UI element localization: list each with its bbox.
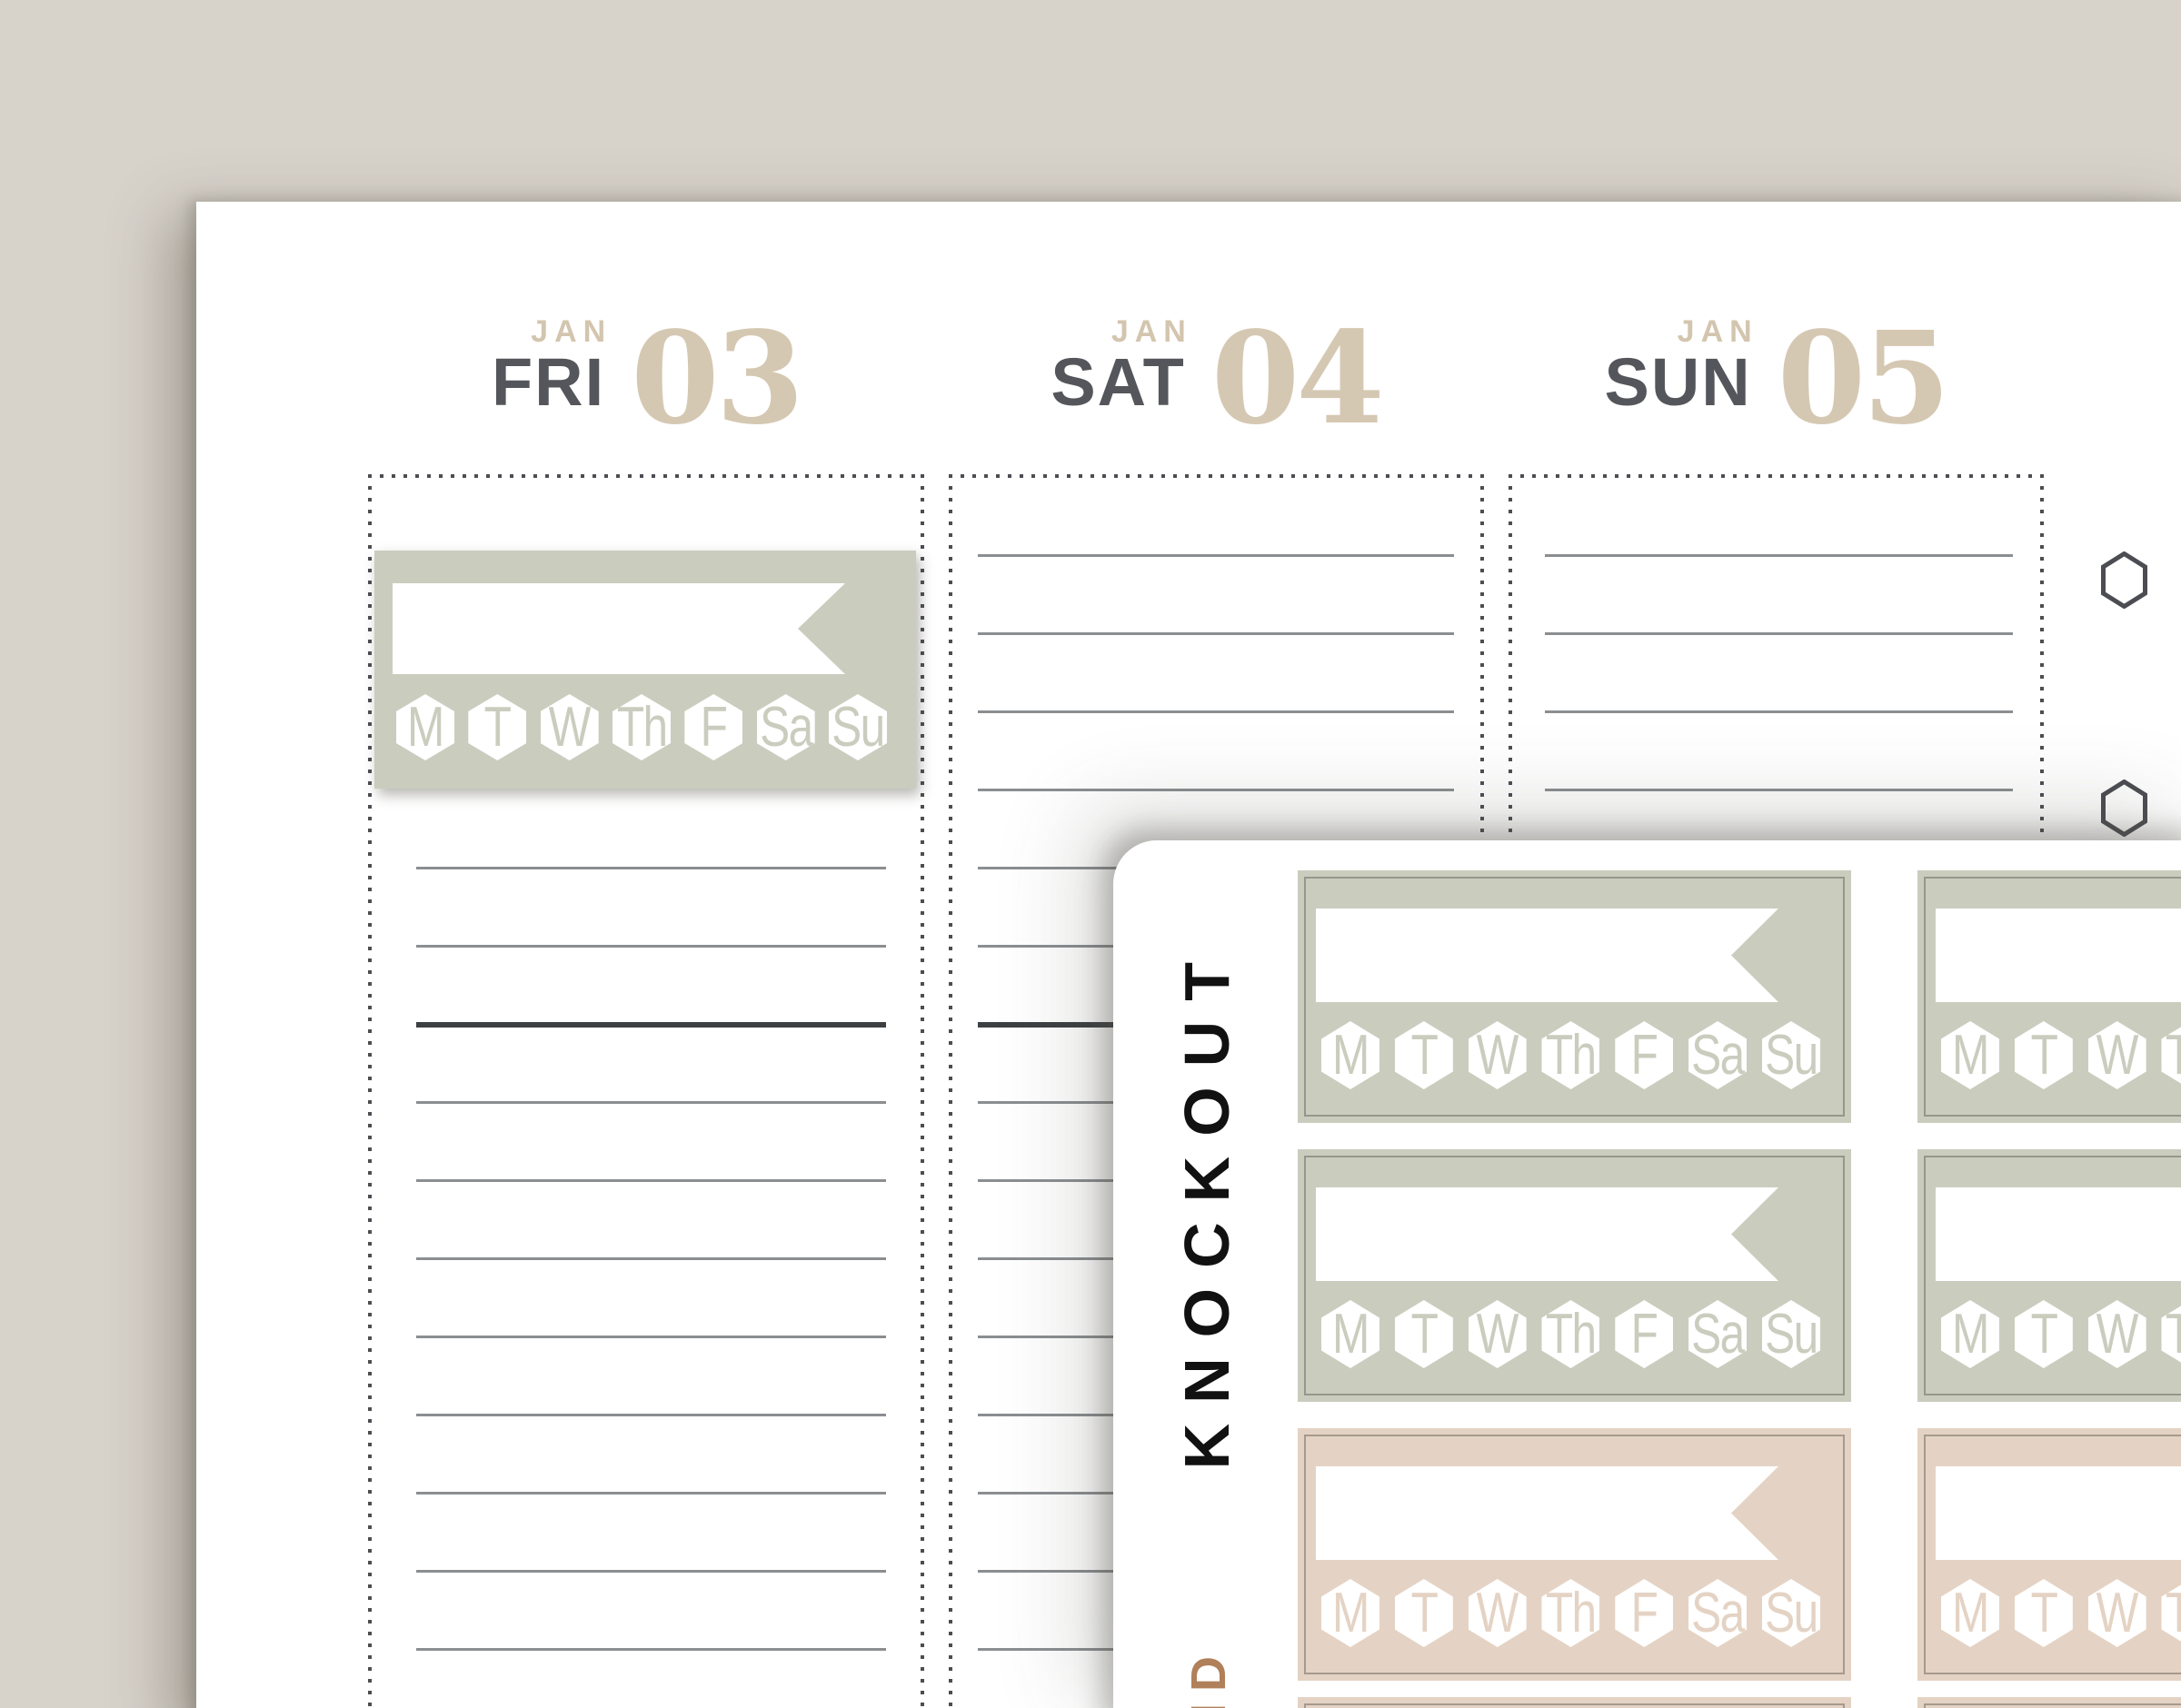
weekday-letter: W — [1477, 1585, 1518, 1642]
weekday-letter: Sa — [1691, 1028, 1743, 1084]
ribbon-banner — [1316, 1187, 1778, 1281]
weekday-hexagon: F — [684, 694, 742, 760]
weekday-hexagon: Th — [2161, 1579, 2181, 1647]
weekday-letter: T — [1410, 1306, 1437, 1363]
sheet-title: KNOCKOUT — [1175, 942, 1239, 1469]
habit-tracker-sticker: MTWThFSaSu — [1298, 1149, 1851, 1402]
weekday-hexagon: F — [1615, 1579, 1673, 1647]
weekday-hexagon-row: MTWThFSaSu — [1321, 1579, 1820, 1647]
weekday-letter: M — [1332, 1028, 1369, 1084]
weekday-hexagon: M — [1941, 1300, 1999, 1368]
habit-tracker-sticker-on-page: MTWThFSaSu — [374, 551, 916, 789]
ruled-line — [416, 867, 886, 869]
weekday-hexagon: T — [2015, 1579, 2073, 1647]
ribbon-banner — [393, 583, 845, 674]
weekday-hexagon: W — [1469, 1579, 1527, 1647]
weekday-letter: Sa — [760, 700, 812, 756]
weekday-hexagon: Su — [1762, 1021, 1820, 1089]
ribbon-banner — [1936, 1466, 2181, 1560]
weekday-letter: Th — [2166, 1306, 2181, 1363]
sticker-sheet: KNOCKOUT SOLID MTWThFSaSuMTWThFSaSuMTWTh… — [1113, 840, 2181, 1708]
weekday-hexagon: M — [1321, 1579, 1379, 1647]
weekday-letter: M — [1332, 1306, 1369, 1363]
weekday-letter: Su — [1765, 1585, 1817, 1642]
ruled-line — [1545, 554, 2013, 557]
date-number: 04 — [1211, 331, 1381, 427]
ruled-line — [416, 1648, 886, 1651]
weekday-letter: Sa — [1691, 1585, 1743, 1642]
day-name-block: JANSUN — [1604, 316, 1751, 411]
ruled-line — [1545, 789, 2013, 791]
ribbon-banner — [1316, 909, 1778, 1002]
habit-tracker-sticker: MTWThFSaSu — [1298, 870, 1851, 1123]
weekday-hexagon: T — [1395, 1021, 1453, 1089]
habit-tracker-sticker: MTWThFSaSu — [1298, 1697, 1851, 1708]
weekday-letter: F — [701, 700, 727, 756]
weekday-hexagon: Sa — [757, 694, 815, 760]
weekday-hexagon: T — [1395, 1579, 1453, 1647]
weekday-hexagon: Su — [829, 694, 887, 760]
month-label: JAN — [492, 316, 612, 347]
weekday-hexagon-row: MTWThFSaSu — [396, 694, 887, 760]
weekday-hexagon-row: MTWThFSaSu — [1941, 1300, 2181, 1368]
weekday-hexagon: W — [541, 694, 599, 760]
weekday-hexagon-row: MTWThFSaSu — [1941, 1579, 2181, 1647]
day-name-block: JANFRI — [492, 316, 605, 411]
weekday-hexagon-row: MTWThFSaSu — [1321, 1021, 1820, 1089]
weekday-letter: M — [1952, 1306, 1988, 1363]
weekday-letter: W — [2096, 1585, 2137, 1642]
weekday-letter: M — [1952, 1585, 1988, 1642]
weekday-hexagon: Su — [1762, 1579, 1820, 1647]
weekday-letter: T — [2030, 1585, 2057, 1642]
hexagon-checkbox-icon — [2101, 551, 2147, 609]
kiss-cut-line — [1924, 1703, 2181, 1708]
weekday-letter: Su — [832, 700, 883, 756]
weekday-letter: W — [1477, 1028, 1518, 1084]
ruled-line — [978, 710, 1454, 713]
ruled-line — [416, 1414, 886, 1416]
weekday-hexagon-row: MTWThFSaSu — [1321, 1300, 1820, 1368]
weekday-hexagon: M — [396, 694, 454, 760]
habit-tracker-sticker: MTWThFSaSu — [1298, 1428, 1851, 1681]
day-header: JANFRI03 — [492, 309, 801, 411]
date-number: 03 — [631, 331, 801, 427]
weekday-hexagon: W — [2088, 1300, 2146, 1368]
weekday-letter: W — [2096, 1028, 2137, 1084]
weekday-letter: T — [2030, 1028, 2057, 1084]
weekday-hexagon: T — [2015, 1021, 2073, 1089]
weekday-hexagon: W — [1469, 1021, 1527, 1089]
weekday-hexagon: F — [1615, 1021, 1673, 1089]
weekday-hexagon: Th — [1541, 1579, 1599, 1647]
ribbon-banner — [1936, 909, 2181, 1002]
weekday-letter: Th — [1546, 1028, 1596, 1084]
weekday-letter: Th — [617, 700, 667, 756]
weekday-letter: Th — [2166, 1028, 2181, 1084]
ruled-line — [416, 1179, 886, 1182]
weekday-hexagon: Su — [1762, 1300, 1820, 1368]
weekday-hexagon: Th — [2161, 1021, 2181, 1089]
weekday-hexagon: Th — [612, 694, 671, 760]
date-number: 05 — [1778, 331, 1947, 427]
hexagon-checkbox-icon — [2101, 780, 2147, 837]
ribbon-banner — [1316, 1466, 1778, 1560]
ruled-line — [978, 789, 1454, 791]
weekday-letter: Sa — [1691, 1306, 1743, 1363]
weekday-letter: W — [549, 700, 590, 756]
weekday-letter: F — [1631, 1306, 1658, 1363]
weekday-hexagon: M — [1941, 1579, 1999, 1647]
weekday-hexagon: Sa — [1688, 1300, 1747, 1368]
ruled-line — [978, 632, 1454, 635]
day-header: JANSAT04 — [1051, 309, 1380, 411]
ruled-line-dark — [416, 1022, 886, 1028]
weekday-hexagon: M — [1321, 1021, 1379, 1089]
weekday-letter: T — [2030, 1306, 2057, 1363]
weekday-letter: Th — [1546, 1585, 1596, 1642]
weekday-hexagon: T — [1395, 1300, 1453, 1368]
weekday-letter: F — [1631, 1585, 1658, 1642]
weekday-letter: T — [1410, 1028, 1437, 1084]
ruled-line — [416, 1336, 886, 1338]
weekday-hexagon: Th — [2161, 1300, 2181, 1368]
ruled-line — [1545, 632, 2013, 635]
weekday-hexagon-row: MTWThFSaSu — [1941, 1021, 2181, 1089]
weekday-hexagon: Sa — [1688, 1021, 1747, 1089]
ruled-line — [416, 1101, 886, 1104]
day-header: JANSUN05 — [1604, 309, 1947, 411]
weekday-hexagon: W — [2088, 1021, 2146, 1089]
weekday-letter: W — [1477, 1306, 1518, 1363]
weekday-letter: F — [1631, 1028, 1658, 1084]
day-name-label: SUN — [1604, 355, 1751, 411]
ruled-line — [978, 554, 1454, 557]
habit-tracker-sticker: MTWThFSaSu — [1917, 1428, 2181, 1681]
day-name-block: JANSAT — [1051, 316, 1186, 411]
weekday-letter: T — [1410, 1585, 1437, 1642]
sheet-partial-label: SOLID — [1184, 1644, 1233, 1708]
kiss-cut-line — [1304, 1703, 1845, 1708]
weekday-hexagon: Sa — [1688, 1579, 1747, 1647]
weekday-letter: Th — [2166, 1585, 2181, 1642]
habit-tracker-sticker: MTWThFSaSu — [1917, 870, 2181, 1123]
weekday-letter: Su — [1765, 1306, 1817, 1363]
weekday-hexagon: M — [1321, 1300, 1379, 1368]
day-name-label: FRI — [492, 355, 605, 411]
weekday-letter: Th — [1546, 1306, 1596, 1363]
weekday-hexagon: F — [1615, 1300, 1673, 1368]
weekday-hexagon: M — [1941, 1021, 1999, 1089]
ruled-line — [416, 1257, 886, 1260]
weekday-hexagon: Th — [1541, 1021, 1599, 1089]
weekday-letter: Su — [1765, 1028, 1817, 1084]
weekday-hexagon: W — [2088, 1579, 2146, 1647]
day-name-label: SAT — [1051, 355, 1186, 411]
ruled-line — [416, 1492, 886, 1494]
weekday-hexagon: Th — [1541, 1300, 1599, 1368]
weekday-hexagon: T — [468, 694, 526, 760]
planner-mockup: JANFRI03JANSAT04JANSUN05 MTWThFSaSu KNOC… — [0, 0, 2181, 1708]
habit-tracker-sticker: MTWThFSaSu — [1917, 1697, 2181, 1708]
ruled-line — [416, 945, 886, 948]
weekday-hexagon: W — [1469, 1300, 1527, 1368]
ruled-line — [1545, 710, 2013, 713]
habit-tracker-sticker: MTWThFSaSu — [1917, 1149, 2181, 1402]
weekday-letter: W — [2096, 1306, 2137, 1363]
weekday-letter: T — [484, 700, 511, 756]
ribbon-banner — [1936, 1187, 2181, 1281]
weekday-letter: M — [407, 700, 443, 756]
month-label: JAN — [1051, 316, 1192, 347]
weekday-hexagon: T — [2015, 1300, 2073, 1368]
weekday-letter: M — [1332, 1585, 1369, 1642]
month-label: JAN — [1604, 316, 1758, 347]
ruled-line — [416, 1570, 886, 1573]
weekday-letter: M — [1952, 1028, 1988, 1084]
